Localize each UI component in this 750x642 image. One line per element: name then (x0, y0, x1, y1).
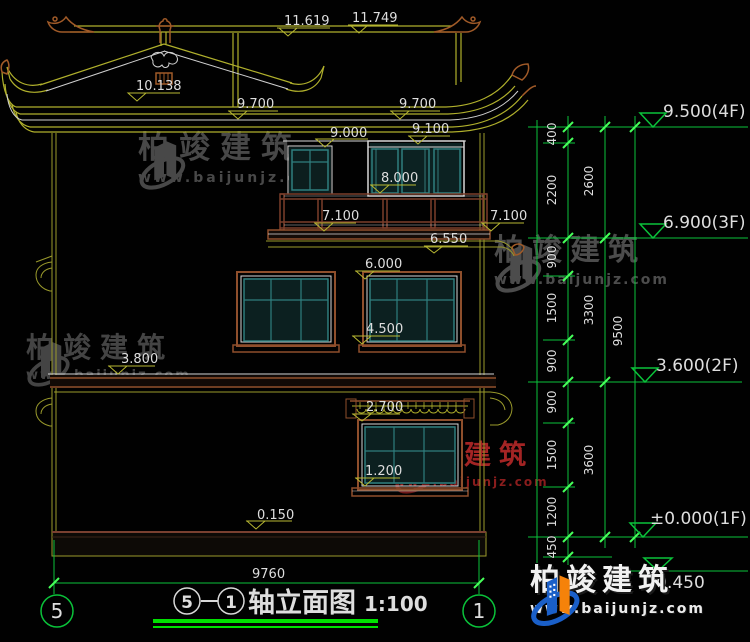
win3-left (233, 272, 339, 352)
dim-seg: 900 (545, 391, 559, 414)
dim-floor: 3600 (582, 445, 596, 476)
dim-seg: 2200 (545, 175, 559, 206)
dim-win4-left: 9.000 (330, 126, 367, 141)
elevation-triangles (630, 113, 672, 571)
axis-left-number: 5 (51, 599, 64, 623)
elev-1f: ±0.000(1F) (650, 509, 747, 529)
baijun-logo-icon (530, 566, 584, 632)
dim-eave3: 6.550 (430, 232, 467, 247)
dim-win4-right: 9.100 (412, 122, 449, 137)
dim-overall-width: 9760 (252, 567, 285, 582)
dim-floor2: 3.800 (121, 352, 158, 367)
eave3-curl-tip (512, 244, 524, 255)
elev-4f: 9.500(4F) (663, 102, 746, 122)
dim-canopy: 2.700 (366, 400, 403, 415)
elevation-texts: 9.500(4F) 6.900(3F) 3.600(2F) ±0.000(1F)… (650, 102, 747, 593)
dim-seg: 900 (545, 246, 559, 269)
dim-win1-sill: 1.200 (365, 464, 402, 479)
axis-right-number: 1 (473, 599, 486, 623)
dim-balcony-rail: 8.000 (381, 171, 418, 186)
dim-seg: 900 (545, 350, 559, 373)
dim-seg: 1500 (545, 440, 559, 471)
dim-gable: 10.138 (136, 79, 182, 94)
dim-eave-left: 9.700 (237, 97, 274, 112)
dim-eave-right: 9.700 (399, 97, 436, 112)
title-scale: 1:100 (364, 592, 428, 616)
title-name: 轴立面图 (248, 587, 356, 619)
watermark-logo-color: 柏竣建筑 www.baijunjz.com (530, 566, 705, 617)
dim-balcony-floor-left: 7.100 (322, 209, 359, 224)
dim-total: 9500 (611, 316, 625, 347)
dim-plinth: 0.150 (257, 508, 294, 523)
dim-balcony-floor-right: 7.100 (490, 209, 527, 224)
elev-3f: 6.900(3F) (663, 213, 746, 233)
balcony-railing (280, 194, 487, 230)
title-underline-thick (153, 619, 378, 623)
win1 (352, 420, 468, 496)
elevation-linework: 11.619 11.749 10.138 9.700 9.700 9.000 9… (0, 0, 750, 642)
title-axis-b: 1 (225, 593, 237, 613)
dim-seg: 450 (545, 536, 559, 559)
dim-seg: 1200 (545, 497, 559, 528)
dim-ridge: 11.619 (284, 14, 330, 29)
dim-floor: 2600 (582, 166, 596, 197)
door4-glass (370, 143, 462, 194)
dim-seg: 1500 (545, 293, 559, 324)
dim-seg: 400 (545, 123, 559, 146)
title-block: 5 1 轴立面图 1:100 (153, 587, 428, 628)
win3-right (359, 272, 465, 352)
title-underline-thin (153, 626, 378, 628)
dim-ridge-top: 11.749 (352, 11, 398, 26)
dim-win3-sill: 4.500 (366, 322, 403, 337)
dim-floor: 3300 (582, 295, 596, 326)
elev-2f: 3.600(2F) (656, 356, 739, 376)
dim-win3-top: 6.000 (365, 257, 402, 272)
title-axis-a: 5 (181, 593, 193, 613)
cad-elevation-drawing: 柏竣建筑 www.baijunjz.com 柏竣建筑 www.baijunjz.… (0, 0, 750, 642)
floor2-band (50, 375, 496, 388)
plinth (52, 532, 486, 556)
